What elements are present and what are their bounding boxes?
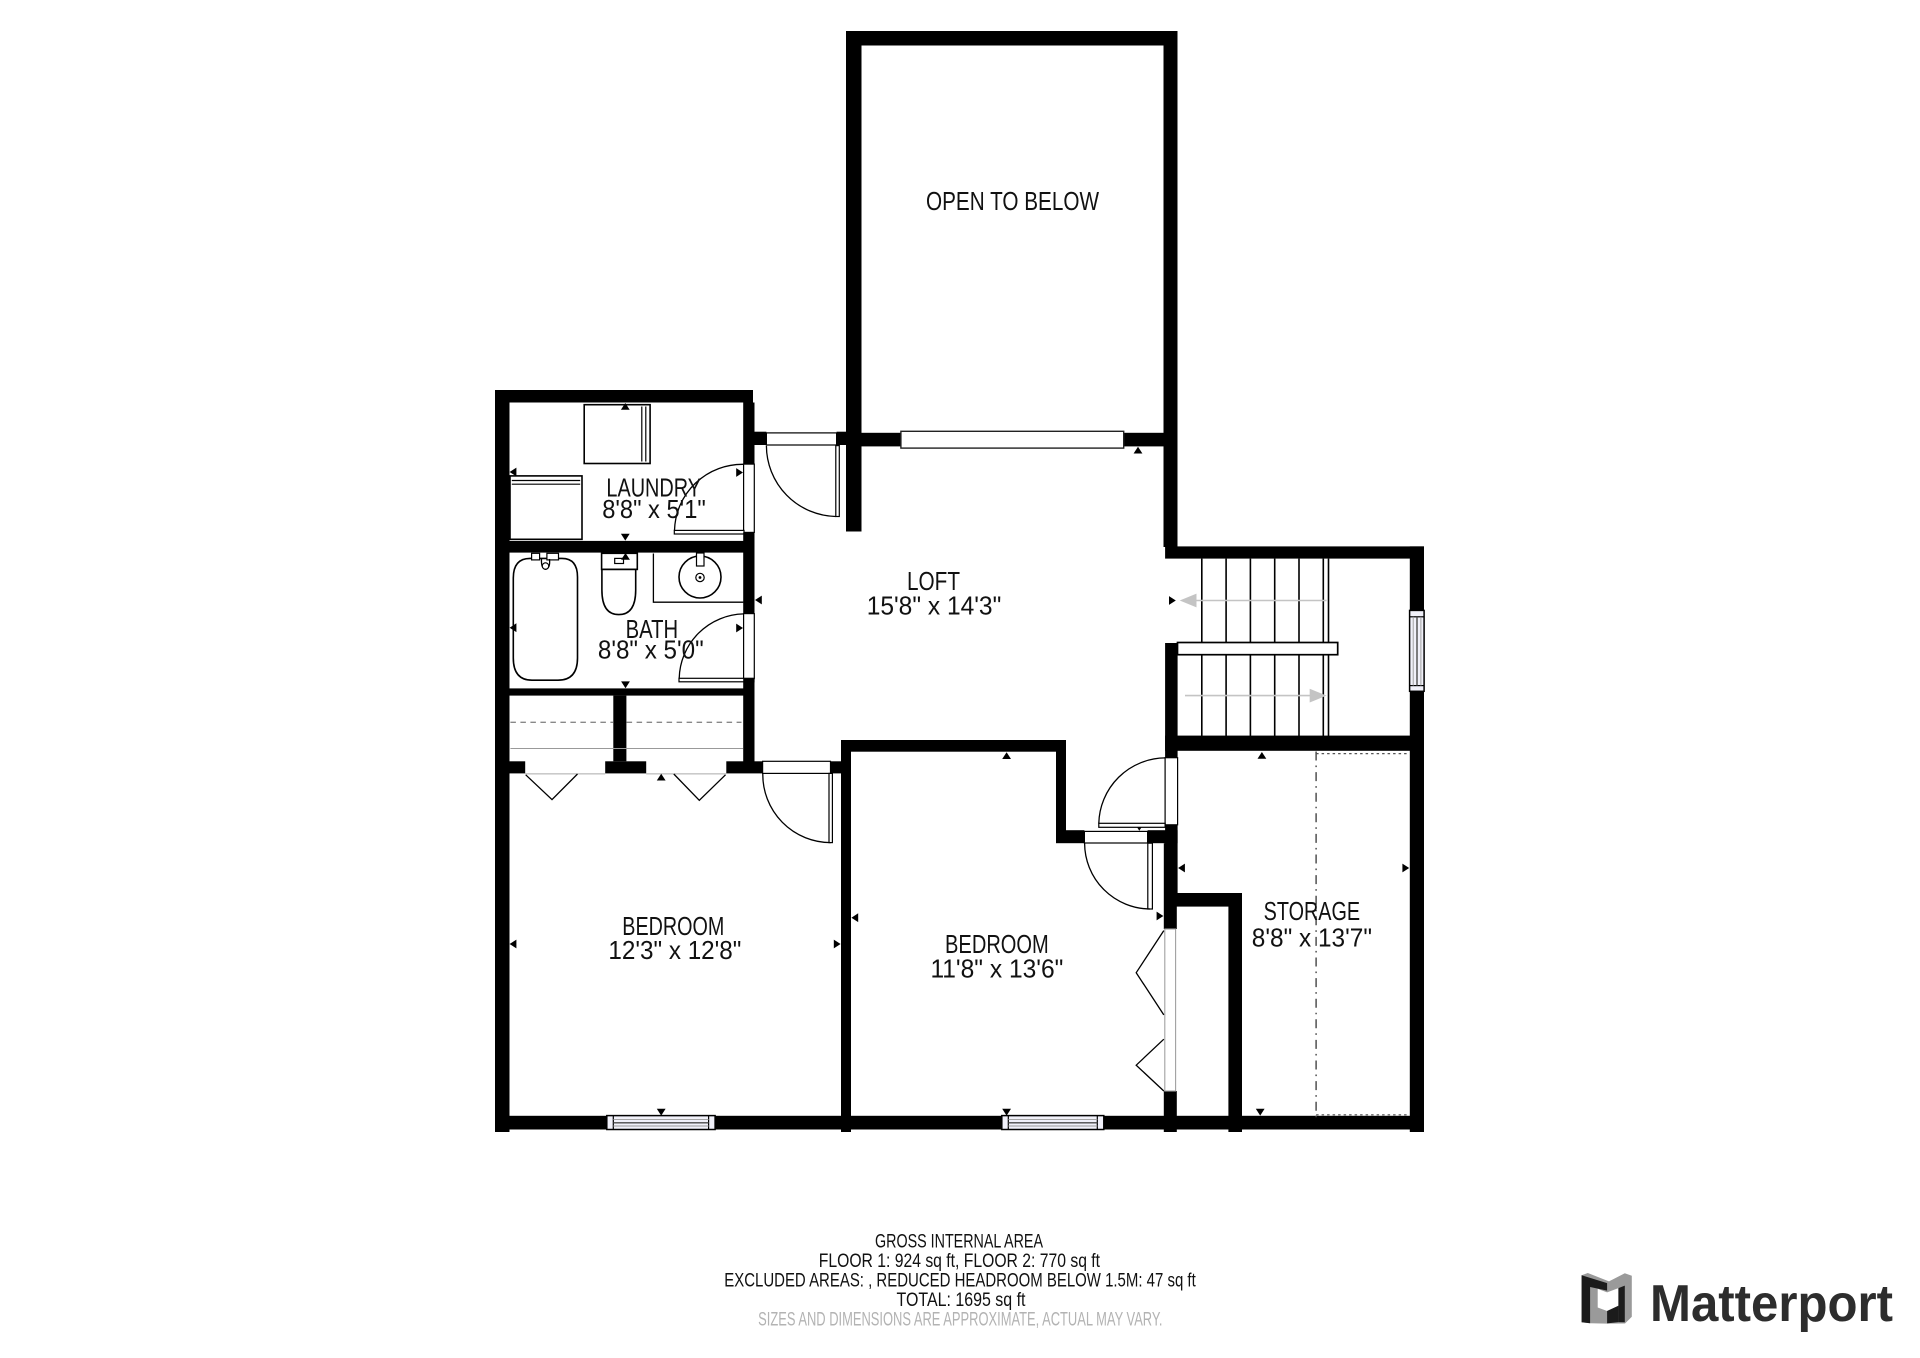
- svg-text:15'8" x 14'3": 15'8" x 14'3": [867, 591, 1002, 621]
- svg-text:Matterport: Matterport: [1650, 1274, 1893, 1332]
- svg-text:TOTAL: 1695 sq ft: TOTAL: 1695 sq ft: [897, 1290, 1027, 1311]
- svg-text:STORAGE: STORAGE: [1264, 896, 1361, 926]
- svg-text:8'8" x 5'0": 8'8" x 5'0": [598, 635, 704, 665]
- svg-text:SIZES AND DIMENSIONS ARE APPRO: SIZES AND DIMENSIONS ARE APPROXIMATE, AC…: [758, 1309, 1162, 1330]
- svg-text:12'3" x 12'8": 12'3" x 12'8": [608, 935, 741, 965]
- svg-text:8'8" x 13'7": 8'8" x 13'7": [1252, 923, 1372, 953]
- svg-text:8'8" x 5'1": 8'8" x 5'1": [602, 494, 706, 524]
- svg-text:GROSS INTERNAL AREA: GROSS INTERNAL AREA: [875, 1231, 1043, 1252]
- svg-text:EXCLUDED AREAS: , REDUCED HEAD: EXCLUDED AREAS: , REDUCED HEADROOM BELOW…: [724, 1270, 1196, 1291]
- svg-text:FLOOR 1: 924 sq ft, FLOOR 2: 7: FLOOR 1: 924 sq ft, FLOOR 2: 770 sq ft: [819, 1251, 1101, 1272]
- svg-text:11'8" x 13'6": 11'8" x 13'6": [930, 954, 1063, 984]
- svg-text:OPEN TO BELOW: OPEN TO BELOW: [926, 186, 1099, 216]
